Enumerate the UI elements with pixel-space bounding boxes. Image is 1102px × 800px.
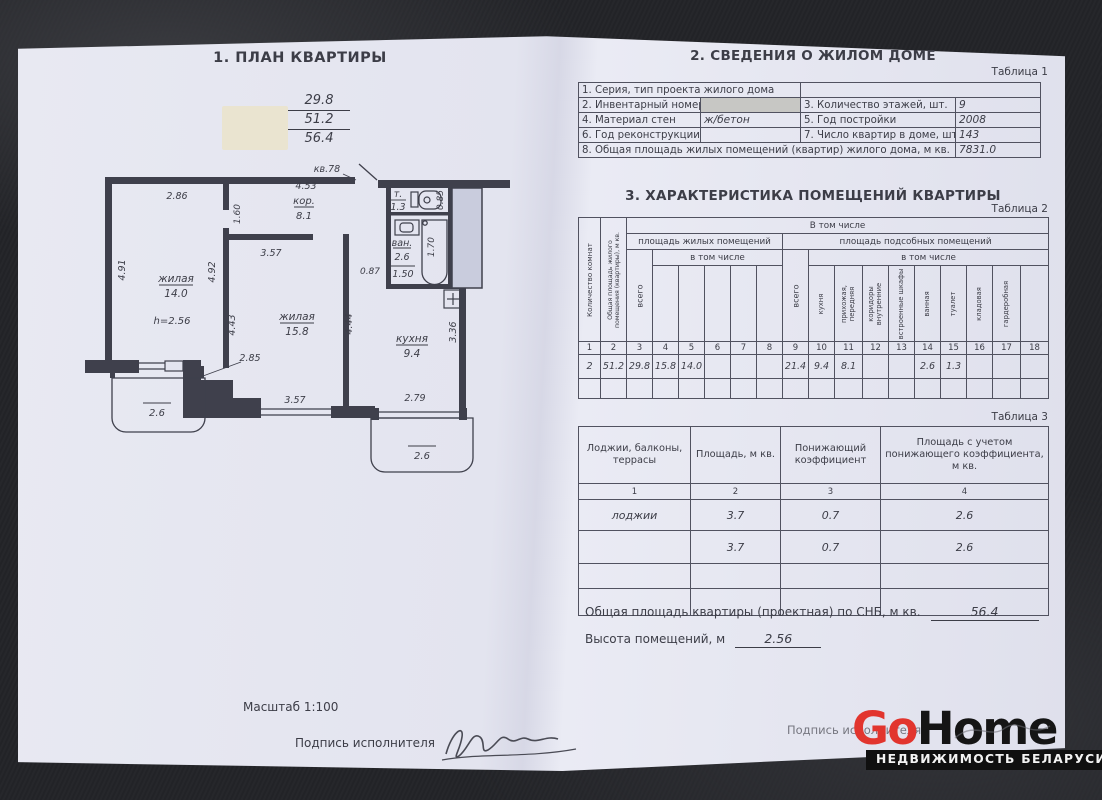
section2-title: 2. СВЕДЕНИЯ О ЖИЛОМ ДОМЕ [578,48,1048,64]
living-including-header: в том числе [653,250,783,266]
bath-label: ван. [392,238,413,249]
floors-label: 3. Количество этажей, шт. [801,98,956,113]
table-cell: 1 [579,342,601,355]
table-cell: 9 [783,342,809,355]
table-cell: 8.1 [835,355,863,379]
table-cell: 16 [967,342,993,355]
table-cell: 6 [705,342,731,355]
sink-icon [395,220,419,235]
table-cell: 4 [653,342,679,355]
builtin-closets-header: встроенные шкафы [889,266,915,342]
empty-row [579,379,1049,399]
executor-signature-label: Подпись исполнителя [295,736,435,750]
table-cell [889,355,915,379]
table-cell: 15 [941,342,967,355]
table-cell [881,564,1049,589]
series-value [801,83,1041,98]
table-cell: 17 [993,342,1021,355]
overall-area-total: 56.4 [288,130,350,148]
table-cell [653,379,679,399]
reconstruction-value [701,128,801,143]
table3-label: Таблица 3 [578,411,1048,423]
table-header-row: Лоджии, балконы, террасы Площадь, м кв. … [579,427,1049,484]
table-cell: 5 [679,342,705,355]
empty-row [579,564,1049,589]
table-cell [915,379,941,399]
dim-160: 1.60 [233,204,243,224]
table-cell: 12 [863,342,889,355]
build-year-value: 2008 [956,113,1041,128]
area-summary-fraction: 29.8 51.2 56.4 [288,92,350,148]
floor-plan-drawing: кв.78 жилая 14.0 h=2.56 жилая 15.8 кухня… [75,160,540,495]
table-cell: 2 [691,484,781,500]
table-cell [967,379,993,399]
table-cell [601,379,627,399]
section3-title: 3. ХАРАКТЕРИСТИКА ПОМЕЩЕНИЙ КВАРТИРЫ [578,188,1048,204]
table-cell: 7 [731,342,757,355]
dim-444: 4.44 [344,313,355,334]
kitchen-header: кухня [809,266,835,342]
table-cell [579,531,691,564]
living-total-header: всего [627,250,653,342]
dim-285: 2.85 [239,353,260,364]
wc-area: 1.3 [390,202,405,213]
loggia-right-outline [371,418,473,472]
table-cell: 21.4 [783,355,809,379]
inventory-label: 2. Инвентарный номер [579,98,701,113]
table-cell: 14 [915,342,941,355]
table-cell: 0.7 [781,531,881,564]
total-living-area-value: 7831.0 [956,143,1041,158]
loggias-header: Лоджии, балконы, террасы [579,427,691,484]
table-cell [863,379,889,399]
table-cell [691,564,781,589]
table-cell: 1.3 [941,355,967,379]
scanned-apartment-passport: { "plan": { "title": "1. ПЛАН КВАРТИРЫ",… [0,0,1102,800]
reconstruction-label: 6. Год реконструкции [579,128,701,143]
table-cell: 2 [601,342,627,355]
table-cell: 3 [627,342,653,355]
empty-header-cell [1021,266,1049,342]
area-header: Площадь, м кв. [691,427,781,484]
right-signature [945,710,1065,750]
table-cell: 2.6 [881,500,1049,531]
table-cell: 2.6 [915,355,941,379]
dim-491: 4.91 [117,259,128,280]
dim-286: 2.86 [166,191,187,202]
table-cell [781,564,881,589]
corridor-label: кор. [293,196,315,207]
kitchen-label: кухня [396,333,428,345]
table-cell [731,379,757,399]
table-cell: 10 [809,342,835,355]
apartment-number-label: кв.78 [314,164,340,175]
wc-label: т. [394,189,403,200]
table-cell [579,379,601,399]
dim-357-top: 3.57 [260,248,281,259]
table-cell [993,355,1021,379]
reduced-area-header: Площадь с учетом понижающего коэффициент… [881,427,1049,484]
table-row: 8. Общая площадь жилых помещений (кварти… [579,143,1041,158]
balcony-window-left [139,361,183,371]
living2-area: 15.8 [285,326,309,338]
loggia-total-row: 3.70.72.6 [579,531,1049,564]
table-row: 2. Инвентарный номер 3. Количество этаже… [579,98,1041,113]
table-cell [705,355,731,379]
living1-area: 14.0 [164,288,188,300]
table-header-row: площадь жилых помещений площадь подсобны… [579,234,1049,250]
room-height-line: Высота помещений, м2.56 [585,631,821,648]
total-living-area-label: 8. Общая площадь жилых помещений (кварти… [579,143,956,158]
aux-area-group-header: площадь подсобных помещений [783,234,1049,250]
ceiling-height-label: h=2.56 [154,316,191,327]
table-cell [705,379,731,399]
loggia-data-row: лоджии3.70.72.6 [579,500,1049,531]
living2-label: жилая [278,311,315,323]
total-area-line: Общая площадь квартиры (проектная) по СН… [585,604,1039,621]
living-area-total: 29.8 [288,92,350,111]
dim-492: 4.92 [207,261,218,282]
table-cell [863,355,889,379]
dim-453: 4.53 [295,181,316,192]
wardrobe-header: гардеробная [993,266,1021,342]
table-cell [757,355,783,379]
table-cell [809,379,835,399]
including-header: В том числе [627,218,1049,234]
table-cell [967,355,993,379]
series-label: 1. Серия, тип проекта жилого дома [579,83,801,98]
room-height-value: 2.56 [735,631,821,648]
living-area-group-header: площадь жилых помещений [627,234,783,250]
dim-443: 4.43 [227,314,238,335]
dim-085: 0.85 [436,190,446,210]
apartment-area-total: 51.2 [288,111,350,130]
shaft-hatched-area [452,188,482,288]
inventory-value-redacted [701,98,801,113]
table-cell: 1 [579,484,691,500]
table-cell [731,355,757,379]
table-cell: лоджии [579,500,691,531]
aux-including-header: в том числе [809,250,1049,266]
table-row: 4. Материал стен ж/бетон 5. Год постройк… [579,113,1041,128]
window-living2 [261,409,331,415]
loggia-left-area: 2.6 [149,408,165,419]
table-cell: 2.6 [881,531,1049,564]
table-cell: 9.4 [809,355,835,379]
table1-label: Таблица 1 [578,66,1048,78]
executor-signature [428,716,588,771]
table-row: 6. Год реконструкции 7. Число квартир в … [579,128,1041,143]
table-cell: 0.7 [781,500,881,531]
bath-area: 2.6 [394,252,409,263]
scale-label: Масштаб 1:100 [243,700,338,714]
table-cell [757,379,783,399]
plan-section-title: 1. ПЛАН КВАРТИРЫ [150,50,450,66]
total-area-snb-label: Общая площадь квартиры (проектная) по СН… [585,605,921,619]
kitchen-area: 9.4 [404,348,421,360]
empty-header-cell [731,266,757,342]
corridors-header: коридоры внутренние [863,266,889,342]
values-row: 251.229.815.814.021.49.48.12.61.3 [579,355,1049,379]
storeroom-header: кладовая [967,266,993,342]
rooms-count-header: Количество комнат [579,218,601,342]
walls-material-label: 4. Материал стен [579,113,701,128]
logo-tagline: НЕДВИЖИМОСТЬ БЕЛАРУСИ [866,750,1102,770]
building-info-table: 1. Серия, тип проекта жилого дома 2. Инв… [578,82,1041,158]
empty-header-cell [705,266,731,342]
dim-357-bottom: 3.57 [284,395,305,406]
table-cell: 15.8 [653,355,679,379]
dim-087: 0.87 [360,267,380,277]
table-cell: 3 [781,484,881,500]
table-cell: 11 [835,342,863,355]
apartments-count-label: 7. Число квартир в доме, шт. [801,128,956,143]
walls-material-value: ж/бетон [701,113,801,128]
aux-total-header: всего [783,250,809,342]
dim-279: 2.79 [404,393,425,404]
room-characteristics-table: Количество комнат Общая площадь жилого п… [578,217,1049,399]
dim-170: 1.70 [427,237,437,257]
table-cell [889,379,915,399]
table-cell: 51.2 [601,355,627,379]
table-header-row: Количество комнат Общая площадь жилого п… [579,218,1049,234]
toilet-header: туалет [941,266,967,342]
bathroom-header: ванная [915,266,941,342]
table-row: 1. Серия, тип проекта жилого дома [579,83,1041,98]
table-cell: 18 [1021,342,1049,355]
empty-header-cell [653,266,679,342]
column-numbers-row: 123456789101112131415161718 [579,342,1049,355]
redacted-area-box [222,106,288,150]
empty-header-cell [679,266,705,342]
table-cell: 4 [881,484,1049,500]
table-cell [783,379,809,399]
table-cell [627,379,653,399]
total-area-snb-value: 56.4 [931,604,1039,621]
table-cell: 13 [889,342,915,355]
loggias-table: Лоджии, балконы, террасы Площадь, м кв. … [578,426,1049,616]
window-kitchen [379,412,459,418]
table-cell: 14.0 [679,355,705,379]
table-cell [993,379,1021,399]
column-numbers-row: 1234 [579,484,1049,500]
apartments-count-value: 143 [956,128,1041,143]
entrance-door-leaf [359,164,377,180]
dim-336: 3.36 [448,321,459,342]
total-area-header: Общая площадь жилого помещения (квартиры… [601,218,627,342]
table-cell: 8 [757,342,783,355]
table2-label: Таблица 2 [578,203,1048,215]
empty-header-cell [757,266,783,342]
table-cell: 29.8 [627,355,653,379]
logo-go: Go [852,702,917,755]
table-cell [941,379,967,399]
table-cell: 2 [579,355,601,379]
living1-label: жилая [157,273,194,285]
room-height-label: Высота помещений, м [585,632,725,646]
table-cell [679,379,705,399]
dim-285-leader [203,362,241,376]
table-cell [1021,355,1049,379]
build-year-label: 5. Год постройки [801,113,956,128]
table-header-row: всего в том числе всего в том числе [579,250,1049,266]
table-cell [835,379,863,399]
bath-width: 1.50 [392,269,413,280]
table-cell [1021,379,1049,399]
loggia-right-area: 2.6 [414,451,430,462]
table-cell [579,564,691,589]
table-cell: 3.7 [691,531,781,564]
hallway-header: прихожая, передняя [835,266,863,342]
table-cell: 3.7 [691,500,781,531]
coefficient-header: Понижающий коэффициент [781,427,881,484]
corridor-area: 8.1 [296,211,312,222]
floors-value: 9 [956,98,1041,113]
